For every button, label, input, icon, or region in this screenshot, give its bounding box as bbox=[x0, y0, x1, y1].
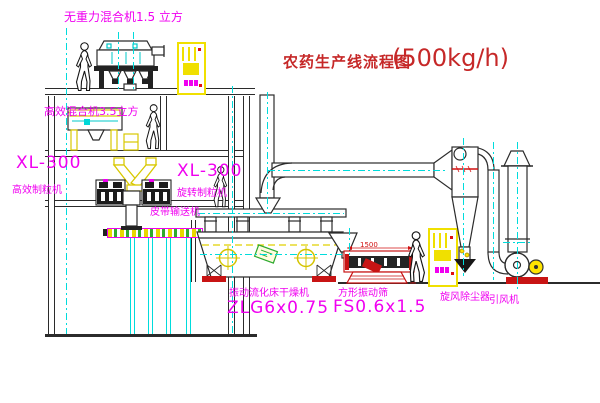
label-mixer-top: 无重力混合机1.5 立方 bbox=[64, 11, 183, 23]
person-figure bbox=[77, 43, 92, 91]
person-figure bbox=[409, 232, 425, 282]
person-figure bbox=[146, 105, 160, 149]
label-granulator-left-name: 高效制粒机 bbox=[12, 186, 62, 196]
label-mixer-second: 高效混合机3.5立方 bbox=[44, 106, 139, 117]
centerline bbox=[493, 142, 494, 280]
label-granulator-center-name: 旋转制粒机 bbox=[177, 189, 227, 199]
centerline bbox=[503, 242, 532, 243]
drawing-capacity: (500kg/h) bbox=[392, 44, 509, 72]
cyclone-dust-collector bbox=[452, 147, 509, 274]
duct-network bbox=[256, 95, 452, 213]
dimension-1500: 1500 bbox=[360, 241, 378, 249]
centerline bbox=[198, 213, 344, 214]
fluid-bed-dryer bbox=[196, 209, 357, 282]
process-flow-drawing: 农药生产线流程图 (500kg/h) 无重力混合机1.5 立方 高效混合机3.5… bbox=[0, 0, 600, 403]
label-dryer-model: ZLG6x0.75 bbox=[227, 300, 329, 317]
centerline bbox=[200, 254, 344, 255]
label-sieve-model: FS0.6x1.5 bbox=[333, 299, 426, 316]
label-cyclone: 旋风除尘器 bbox=[440, 293, 490, 303]
centerline bbox=[463, 138, 464, 276]
centerline bbox=[517, 142, 518, 292]
centerline bbox=[118, 32, 119, 92]
centerline bbox=[349, 228, 350, 256]
label-fan: 引风机 bbox=[489, 296, 519, 306]
centerline bbox=[66, 28, 67, 334]
centerline bbox=[267, 92, 268, 214]
centerline bbox=[268, 170, 448, 171]
vibrating-sieve bbox=[344, 246, 416, 283]
discharge-chute bbox=[121, 191, 142, 230]
label-granulator-center-model: XL-300 bbox=[177, 163, 242, 180]
centerline bbox=[133, 32, 134, 92]
gravity-free-mixer bbox=[94, 41, 164, 90]
label-belt-conveyor: 皮带输送机 bbox=[150, 208, 200, 218]
label-granulator-left-model: XL-300 bbox=[16, 155, 81, 172]
stack-and-fan bbox=[501, 151, 548, 284]
